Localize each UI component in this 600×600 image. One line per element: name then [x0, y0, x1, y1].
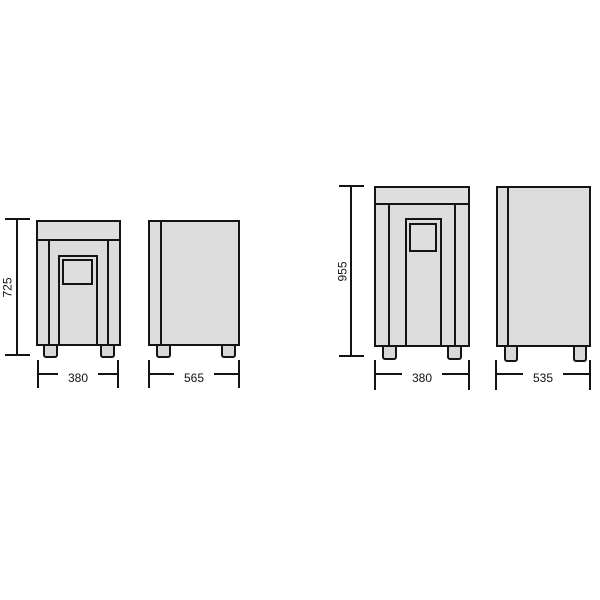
panel-seam — [107, 241, 109, 344]
caster — [573, 345, 587, 362]
small-unit-side-view — [148, 220, 240, 346]
width-dimension-label: 380 — [402, 372, 442, 385]
dimension-tick — [5, 354, 30, 356]
top-band — [376, 188, 468, 205]
door-panel — [405, 218, 442, 345]
depth-dimension-label: 535 — [523, 372, 563, 385]
width-dimension-label: 380 — [58, 372, 98, 385]
dimension-line — [350, 185, 352, 357]
caster — [447, 345, 462, 360]
technical-diagram-canvas: 725 380 — [0, 0, 600, 600]
panel-seam — [454, 205, 456, 345]
dimension-tick — [374, 360, 376, 390]
panel-seam — [48, 241, 50, 344]
door-panel — [58, 255, 98, 344]
door-window — [409, 223, 437, 252]
dimension-tick — [589, 360, 591, 390]
panel-seam — [507, 188, 509, 345]
dimension-tick — [495, 360, 497, 390]
caster — [504, 345, 518, 362]
large-unit-side-view — [496, 186, 591, 347]
top-band — [38, 222, 119, 241]
small-unit-front-view — [36, 220, 121, 346]
dimension-tick — [468, 360, 470, 390]
caster — [382, 345, 397, 360]
large-unit-front-view — [374, 186, 470, 347]
dimension-tick — [339, 355, 364, 357]
dimension-line — [16, 218, 18, 356]
door-window — [62, 259, 93, 285]
panel-seam — [388, 205, 390, 345]
height-dimension-label: 725 — [2, 267, 15, 309]
depth-dimension-label: 565 — [174, 372, 214, 385]
panel-seam — [160, 222, 162, 344]
height-dimension-label: 955 — [337, 251, 350, 293]
